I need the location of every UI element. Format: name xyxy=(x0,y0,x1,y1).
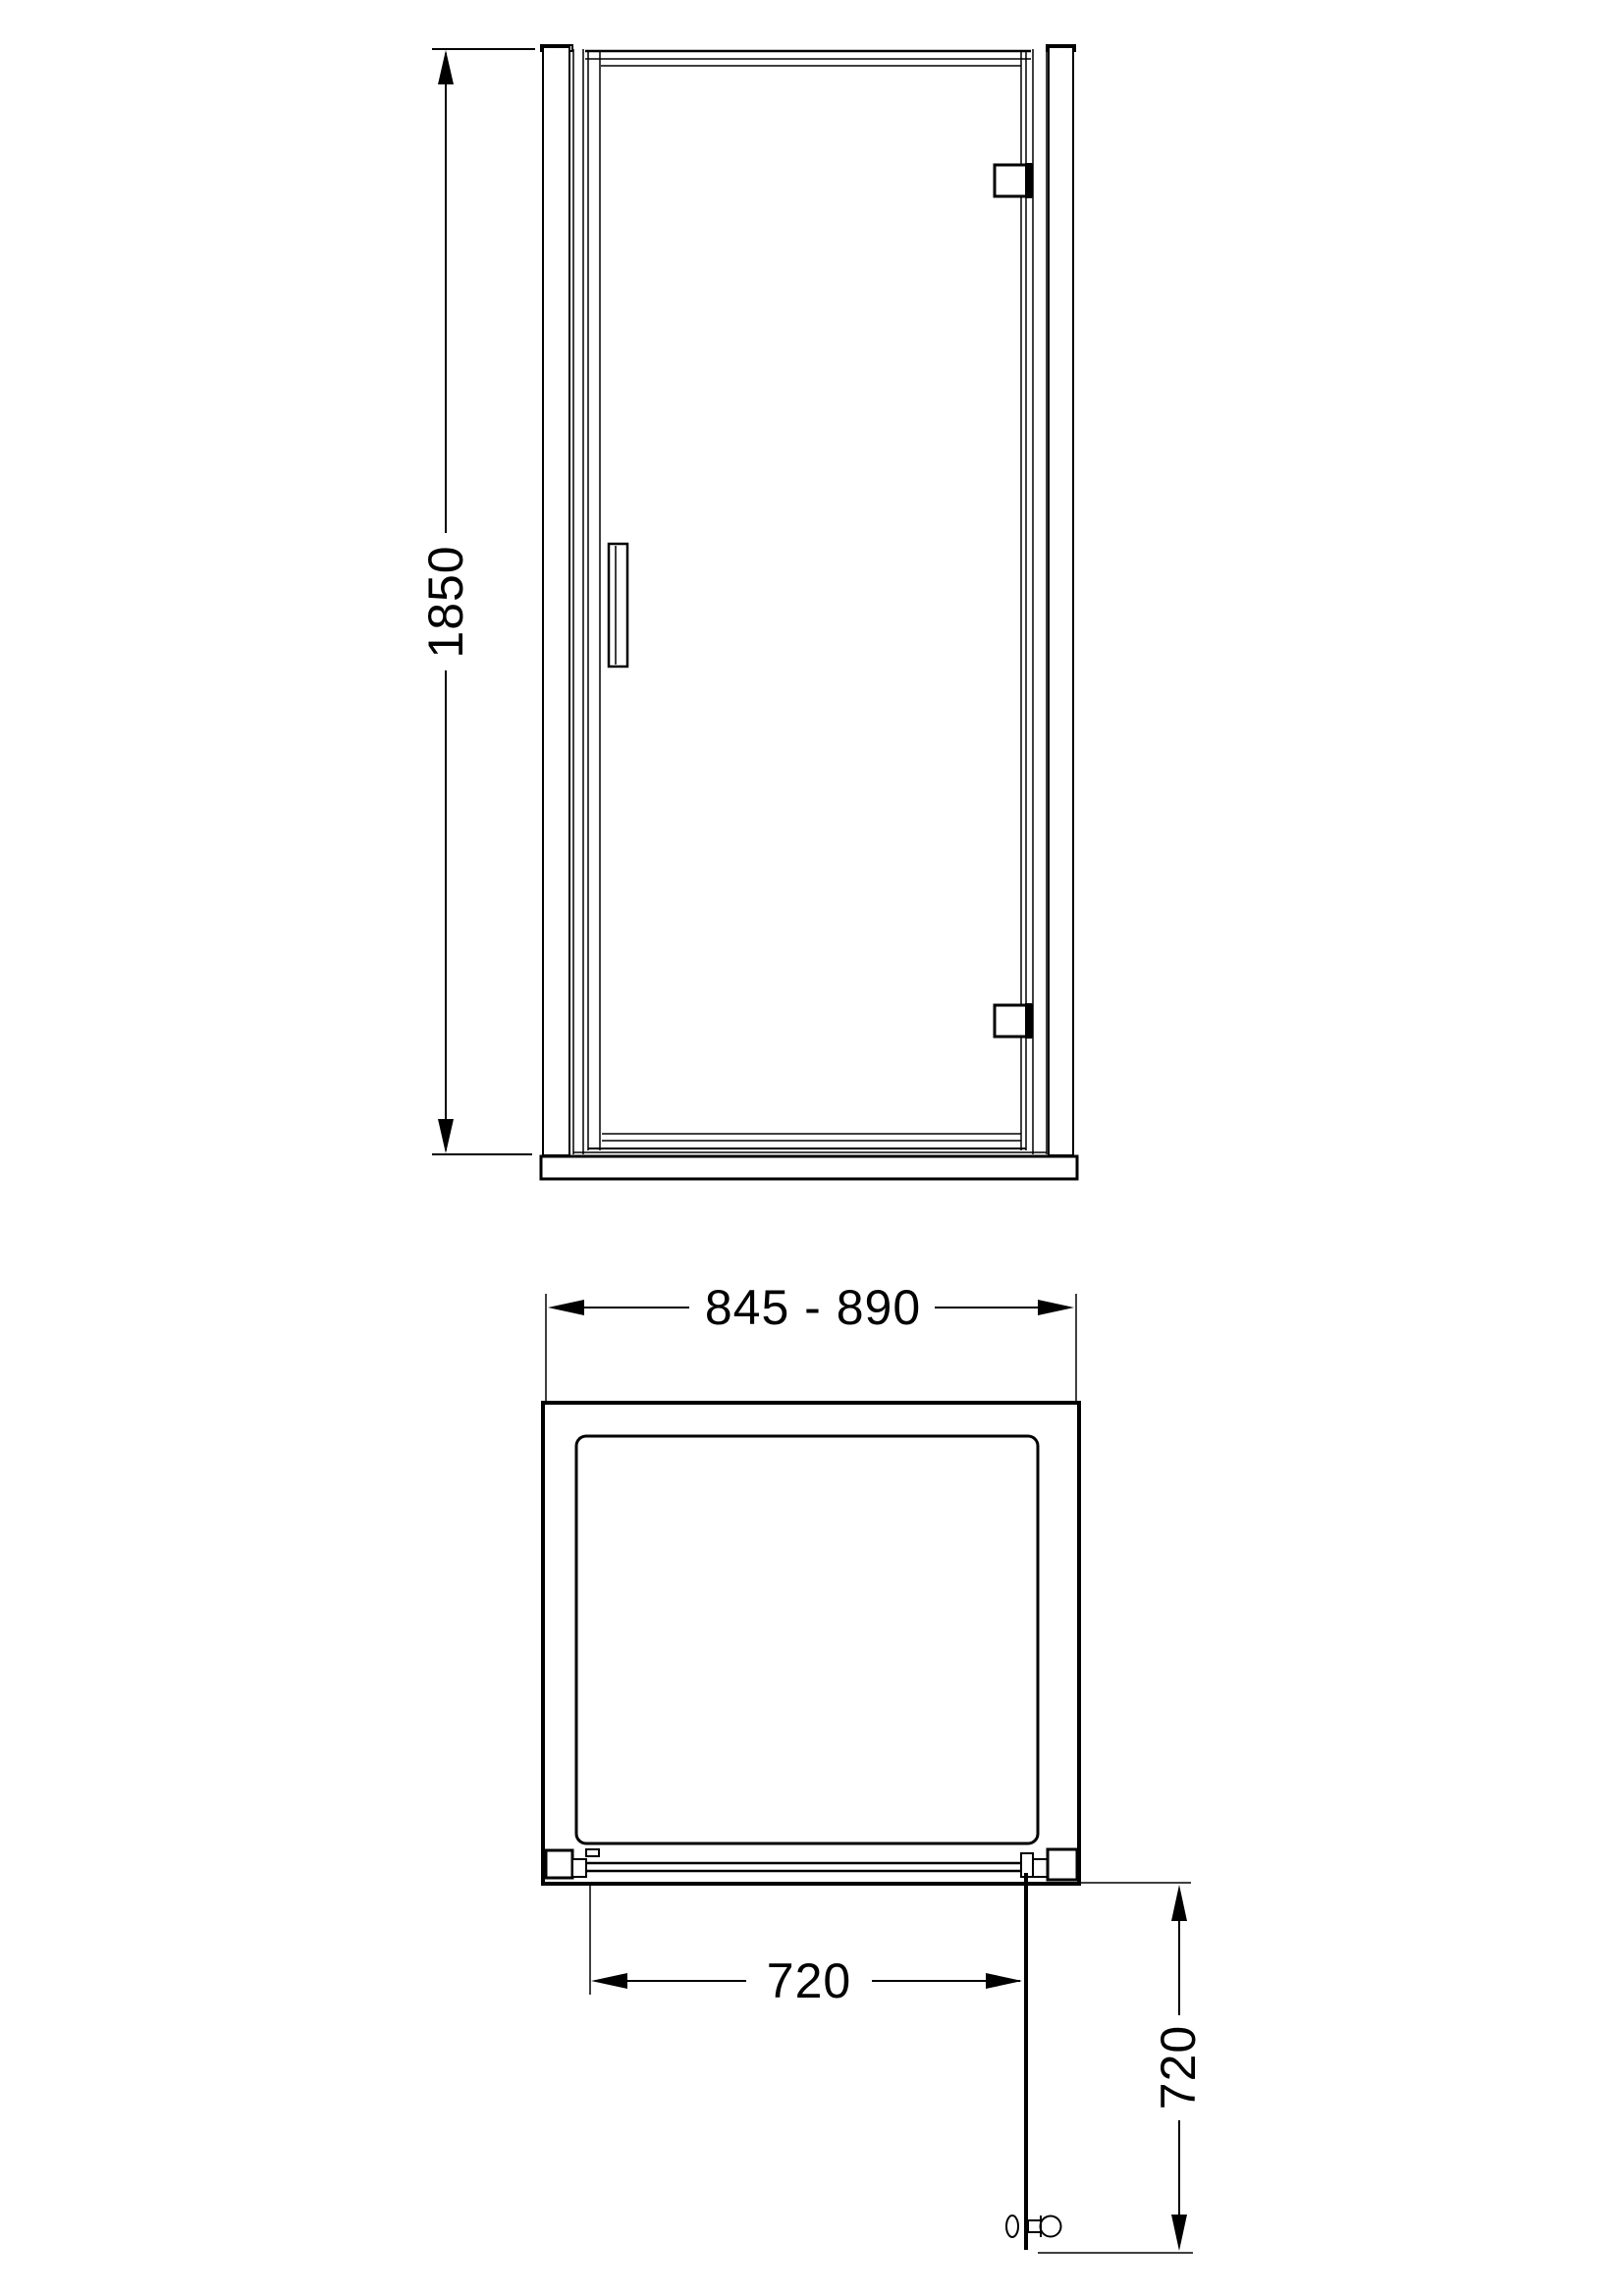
left-track-step xyxy=(586,1849,599,1856)
door-width-dimension-label: 720 xyxy=(761,1956,857,2005)
arrow-right-icon xyxy=(986,1973,1022,1989)
bottom-rail xyxy=(573,1134,1047,1152)
height-dimension-label: 1850 xyxy=(421,539,470,664)
right-wall-body xyxy=(1049,47,1073,1155)
right-wall-profile xyxy=(1047,45,1075,1155)
shower-tray-front xyxy=(541,1156,1077,1179)
door-handle xyxy=(609,544,627,667)
open-door-leaf xyxy=(1024,1873,1028,2250)
technical-drawing-page: 1850 845 - 890 720 720 xyxy=(0,0,1623,2296)
top-hinge xyxy=(995,163,1032,198)
arrow-left-icon xyxy=(548,1300,584,1315)
glass-channels xyxy=(573,49,1047,1154)
top-rail xyxy=(585,51,1031,66)
shower-door-line-drawing xyxy=(0,0,1623,2296)
arrow-left-icon xyxy=(591,1973,627,1989)
left-track-end xyxy=(572,1859,586,1877)
bottom-hinge xyxy=(995,1003,1032,1039)
arrow-down-icon xyxy=(438,1119,454,1153)
arrow-right-icon xyxy=(1038,1300,1074,1315)
door-glass-panel xyxy=(588,51,1026,1150)
arrow-up-icon xyxy=(1171,1885,1187,1921)
plan-tray-outline xyxy=(576,1436,1038,1843)
left-wall-bracket xyxy=(546,1850,572,1878)
arrow-up-icon xyxy=(438,50,454,84)
front-elevation-view xyxy=(432,45,1077,1179)
right-wall-bracket xyxy=(1048,1849,1077,1880)
open-door-plan xyxy=(1006,1873,1061,2250)
arrow-down-icon xyxy=(1171,2215,1187,2251)
left-wall-body xyxy=(543,47,569,1155)
door-knob xyxy=(1006,2216,1061,2237)
right-track-end xyxy=(1033,1859,1048,1877)
plan-view xyxy=(543,1294,1193,2253)
door-projection-dimension-label: 720 xyxy=(1154,2019,1203,2115)
width-dimension-label: 845 - 890 xyxy=(699,1283,927,1332)
left-wall-profile xyxy=(541,45,572,1155)
